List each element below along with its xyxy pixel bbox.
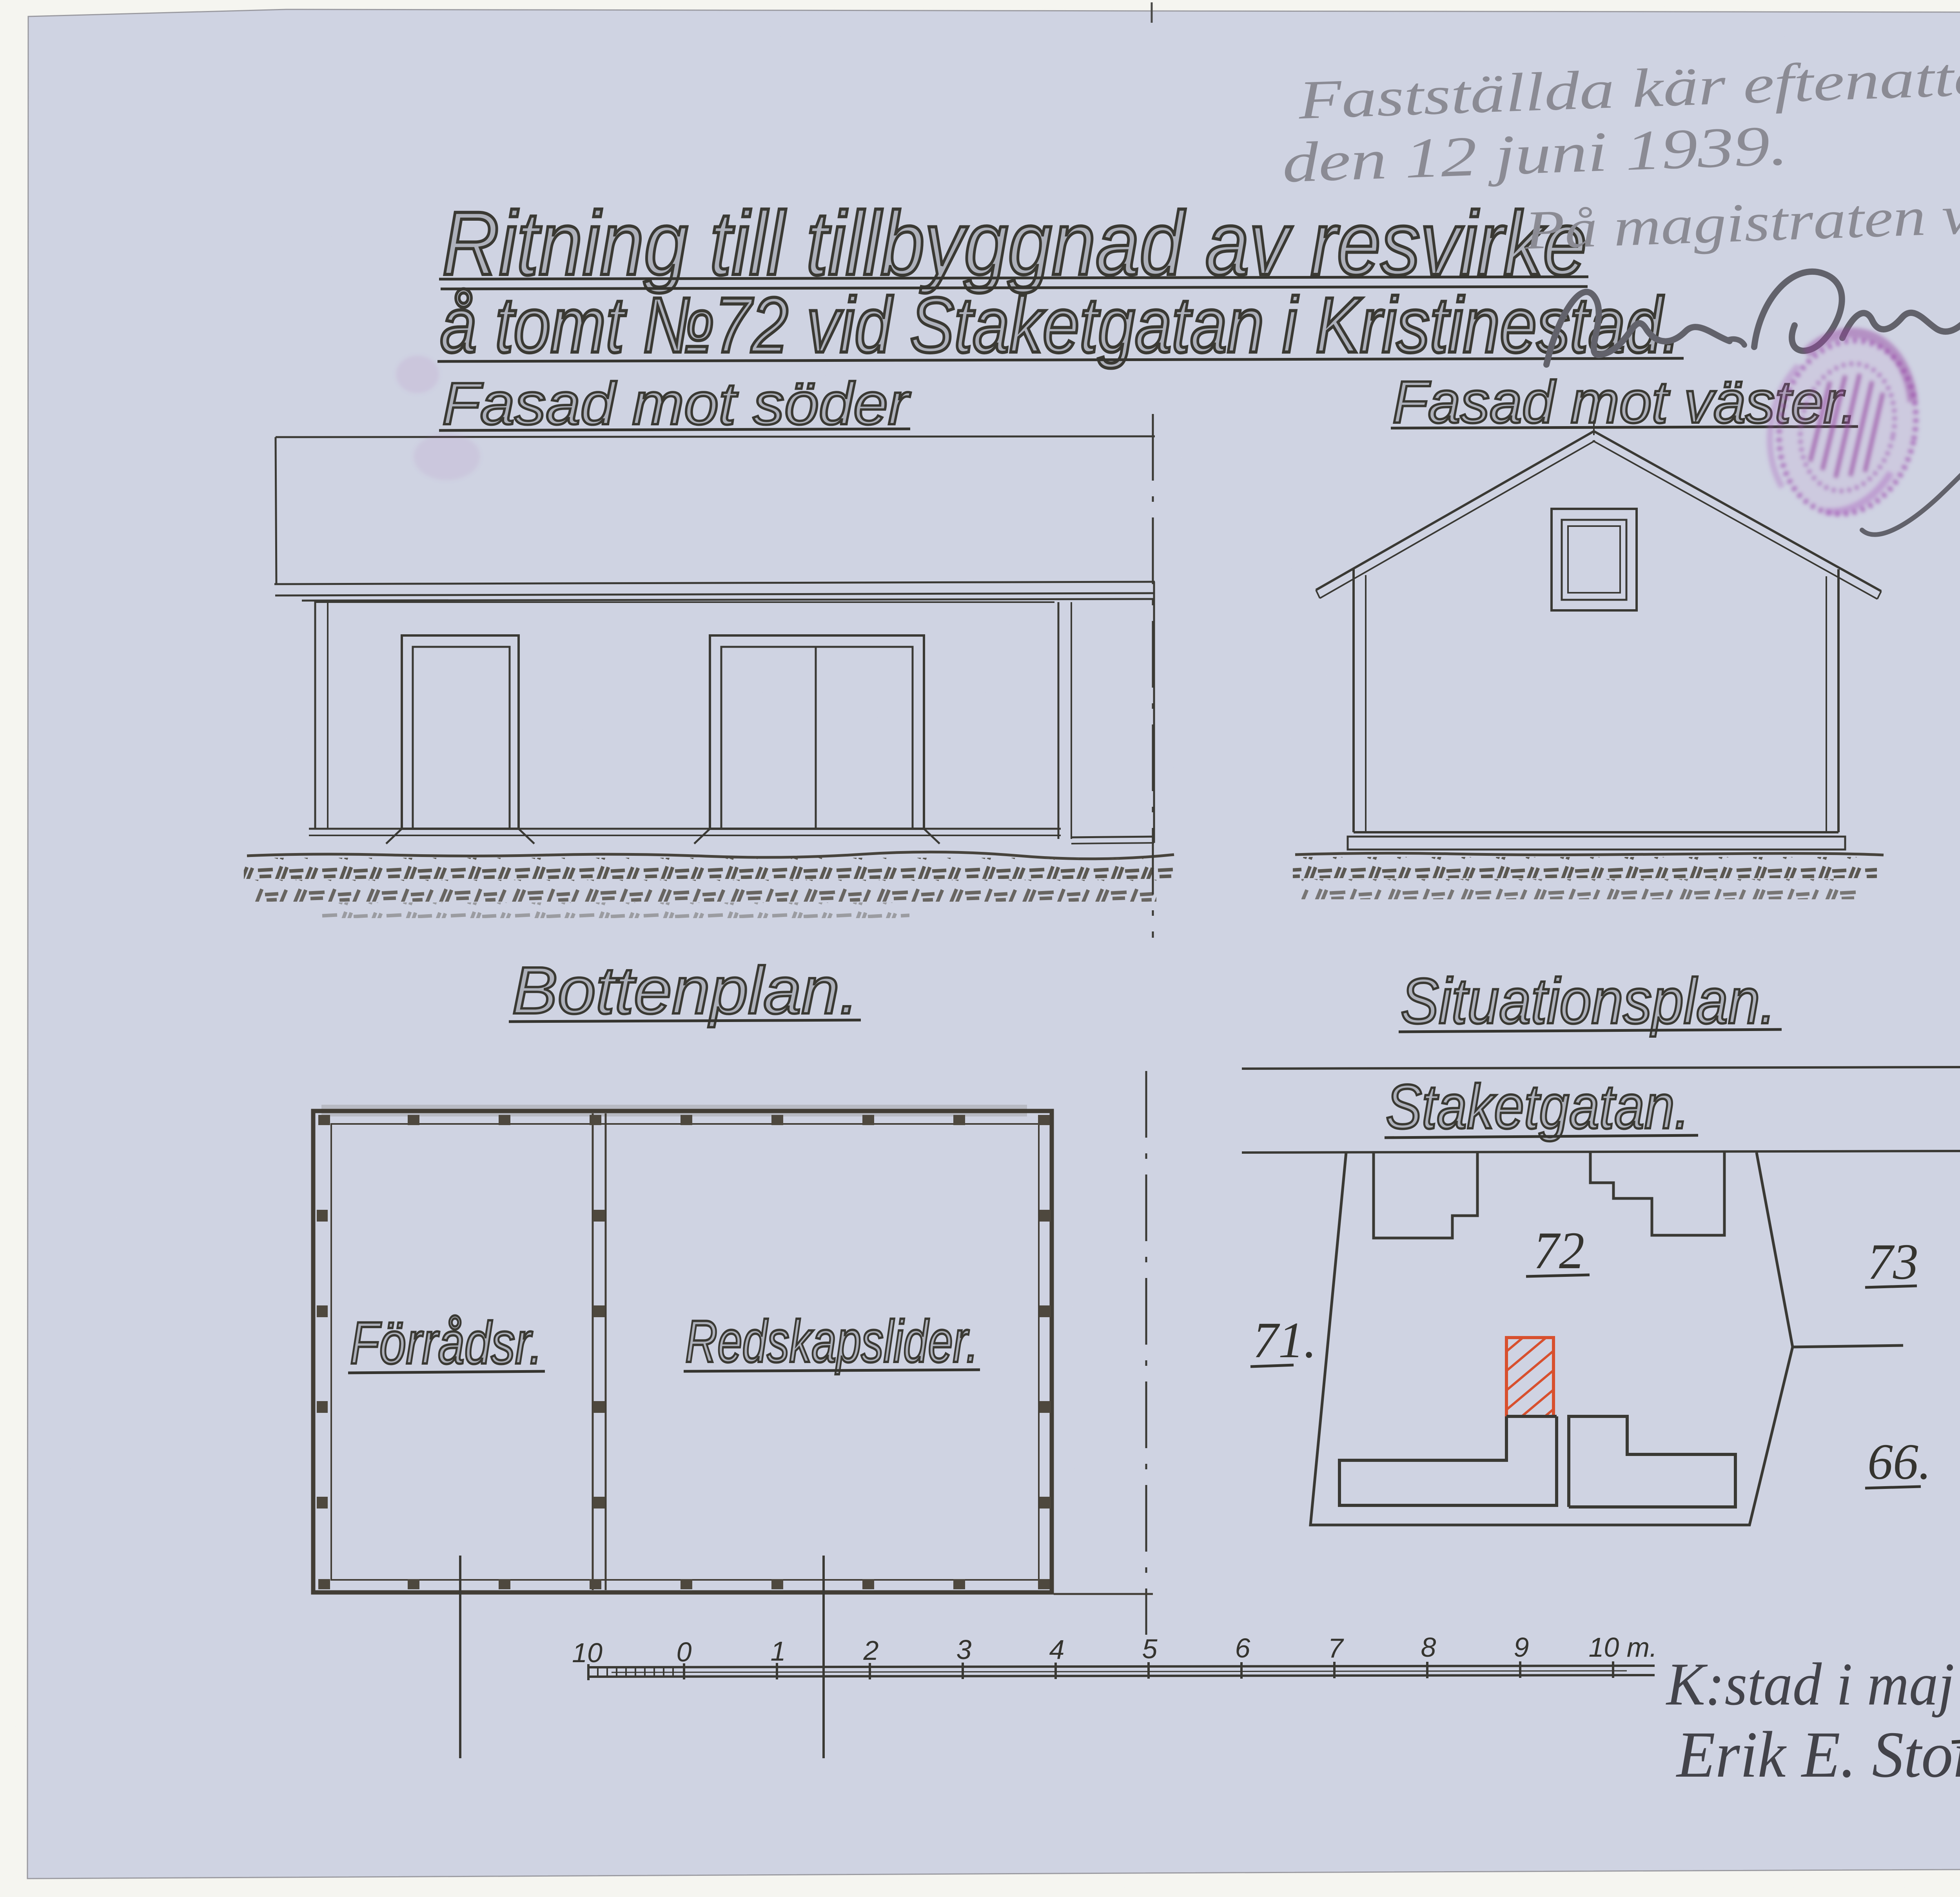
svg-text:2: 2 [863, 1635, 879, 1666]
svg-text:Staketgatan.: Staketgatan. [1386, 1071, 1690, 1142]
svg-text:6: 6 [1235, 1633, 1250, 1663]
svg-text:10 m.: 10 m. [1588, 1632, 1657, 1663]
svg-text:66.: 66. [1867, 1434, 1931, 1490]
svg-text:K:stad i maj 1939.: K:stad i maj 1939. [1666, 1650, 1960, 1718]
svg-text:Redskapslider.: Redskapslider. [685, 1308, 978, 1375]
svg-text:3: 3 [956, 1634, 972, 1665]
svg-text:å tomt №72 vid Staketgatan i K: å tomt №72 vid Staketgatan i Kristinesta… [440, 281, 1681, 369]
svg-text:9: 9 [1514, 1632, 1529, 1663]
svg-text:71.: 71. [1253, 1312, 1317, 1369]
svg-text:7: 7 [1328, 1633, 1345, 1663]
svg-text:Bottenplan.: Bottenplan. [512, 953, 858, 1028]
svg-text:73: 73 [1867, 1234, 1918, 1290]
svg-text:1: 1 [771, 1636, 786, 1666]
svg-text:Förrådsr.: Förrådsr. [350, 1310, 543, 1376]
svg-text:8: 8 [1421, 1632, 1436, 1663]
svg-text:Erik E. Storlhors.: Erik E. Storlhors. [1676, 1718, 1960, 1791]
svg-text:72: 72 [1534, 1222, 1584, 1280]
svg-text:5: 5 [1142, 1634, 1158, 1664]
svg-text:0: 0 [677, 1637, 692, 1667]
svg-text:4: 4 [1049, 1634, 1065, 1665]
svg-text:Situationsplan.: Situationsplan. [1401, 965, 1776, 1037]
svg-text:10: 10 [572, 1637, 603, 1668]
svg-text:Fasad mot söder: Fasad mot söder [442, 370, 911, 437]
